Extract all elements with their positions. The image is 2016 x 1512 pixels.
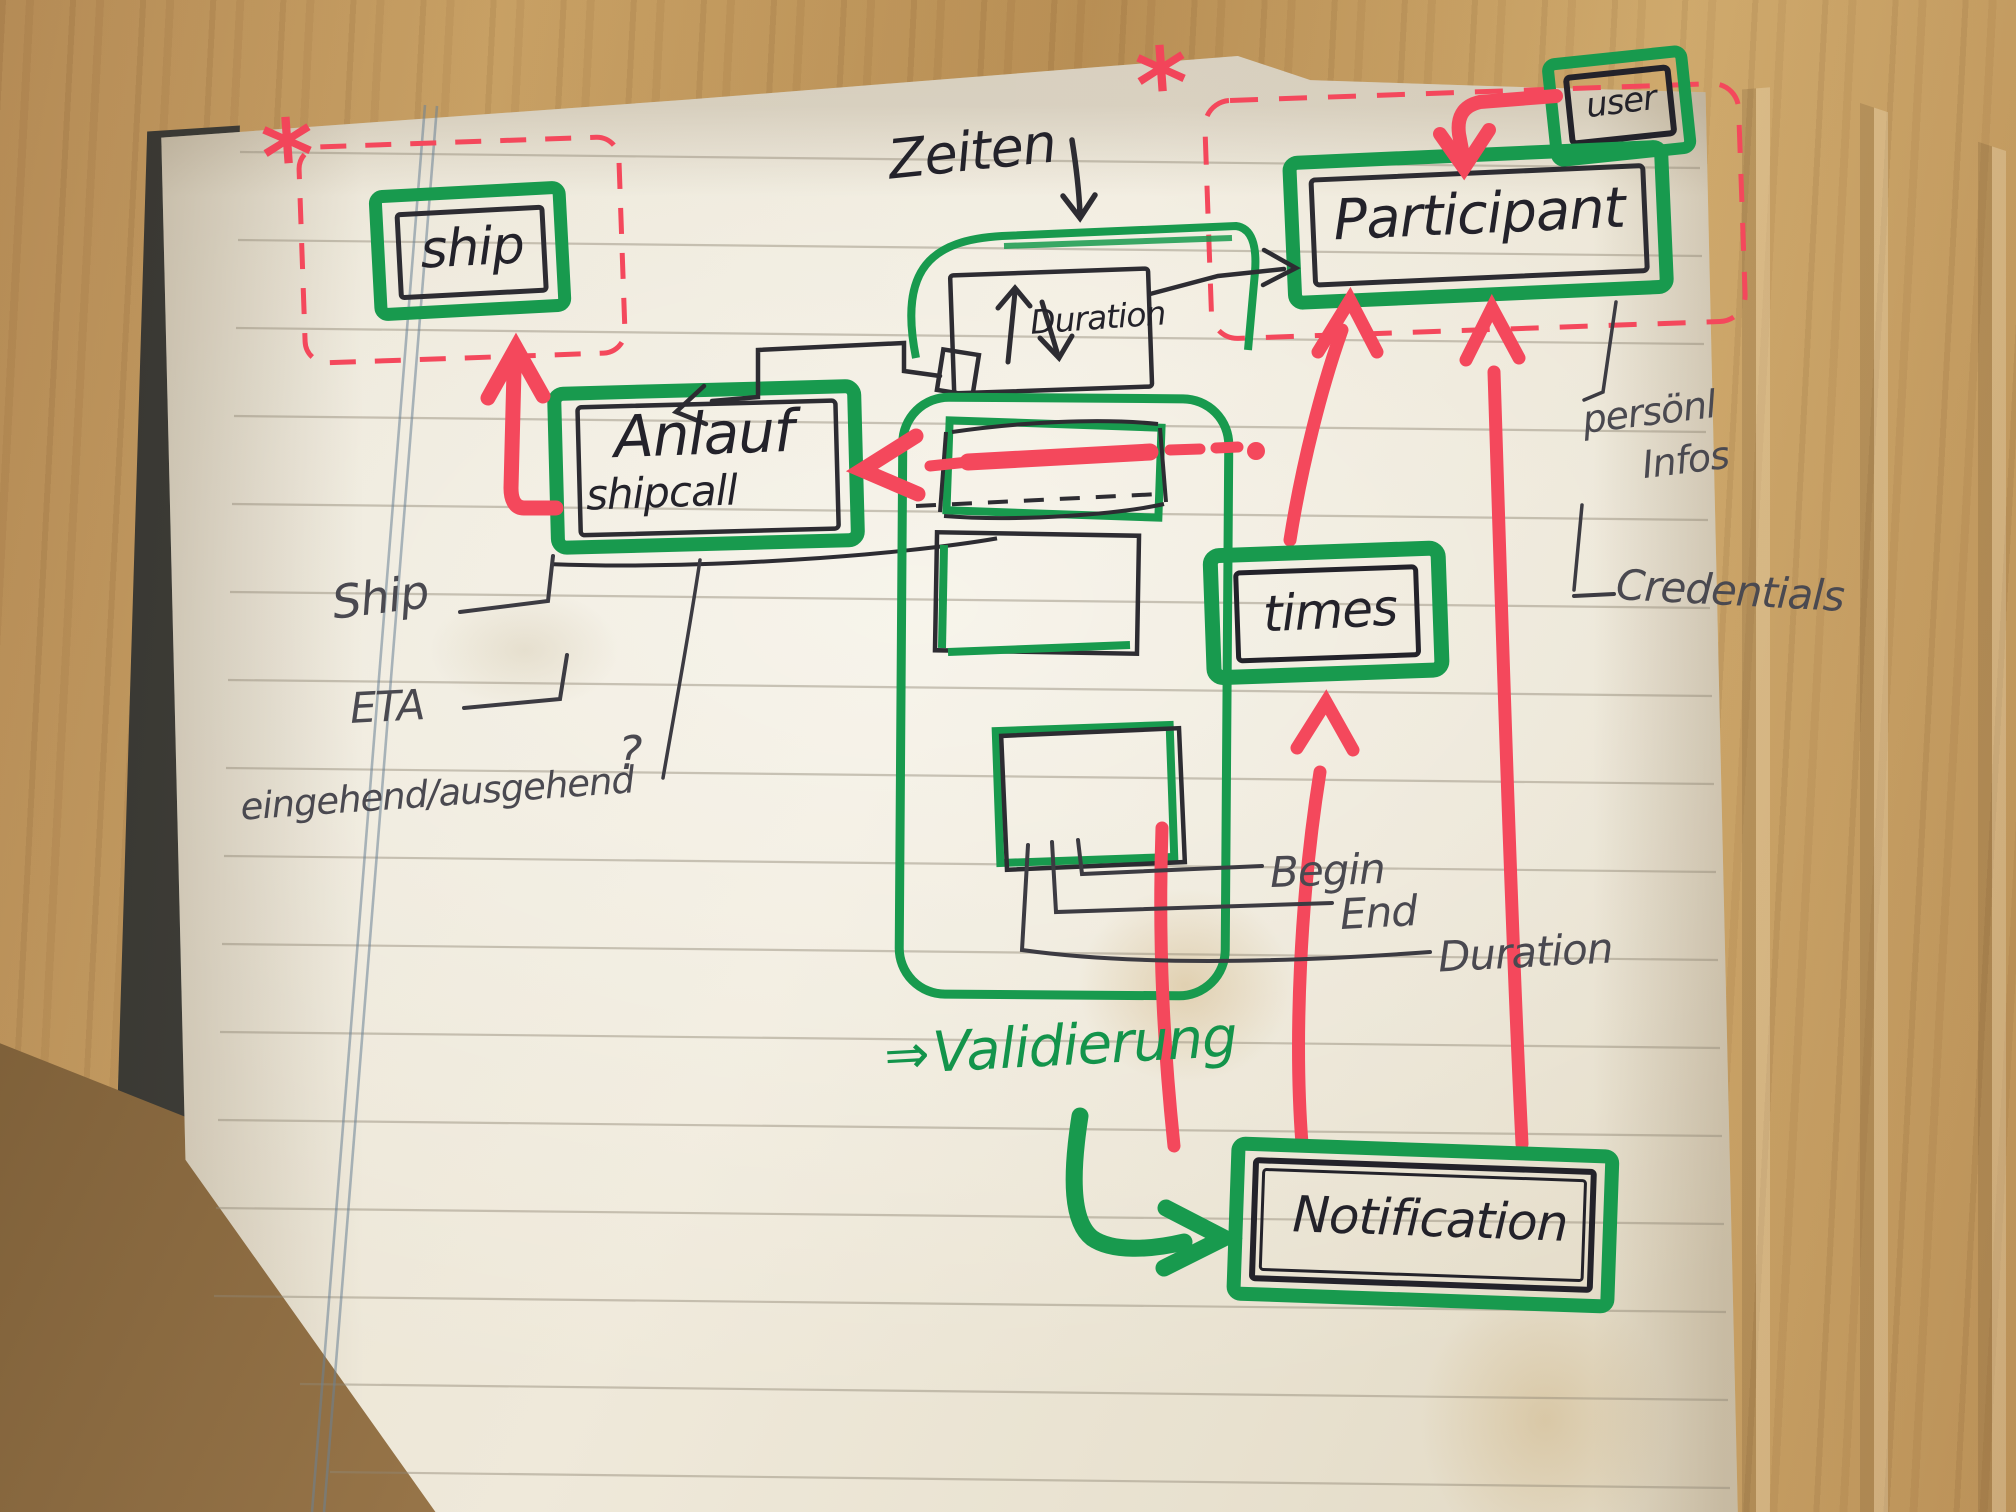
ship-required-asterisk: * <box>258 96 317 216</box>
connector-duration-to-participant <box>1150 250 1296 294</box>
ship-box-label: ship <box>401 214 544 281</box>
photo-canvas: * ship Zeiten Duration * Participant use… <box>0 0 2016 1512</box>
shipcall-sublabel: shipcall <box>585 465 738 519</box>
zeit-slot-box-2 <box>935 532 1139 654</box>
duration-square-connector <box>937 349 979 395</box>
eta-attribute-label: ETA <box>349 680 426 733</box>
zeit-slot-box-1 <box>916 420 1166 518</box>
red-dashed-arrow-to-anlauf <box>862 436 1265 494</box>
sketch-ink-layer <box>0 0 2016 1512</box>
red-arrow-anlauf-to-ship <box>488 348 556 508</box>
duration-attribute-label: Duration <box>1437 923 1614 981</box>
validierung-arrow-icon: ⇒ <box>883 1022 930 1087</box>
red-arrow-times-to-participant <box>1290 300 1377 540</box>
participant-required-asterisk: * <box>1132 24 1191 144</box>
zeiten-down-arrow-icon <box>1063 140 1095 218</box>
anlauf-box-label: Anlauf <box>613 397 795 471</box>
notification-box-label: Notification <box>1267 1184 1593 1253</box>
green-arrow-to-notification <box>1074 1116 1224 1268</box>
red-arrow-notification-to-times <box>1161 702 1353 1146</box>
red-arrow-notification-to-participant <box>1466 308 1522 1144</box>
times-box-label: times <box>1249 578 1412 644</box>
inout-question-mark: ? <box>618 726 641 780</box>
end-attribute-label: End <box>1339 886 1418 939</box>
